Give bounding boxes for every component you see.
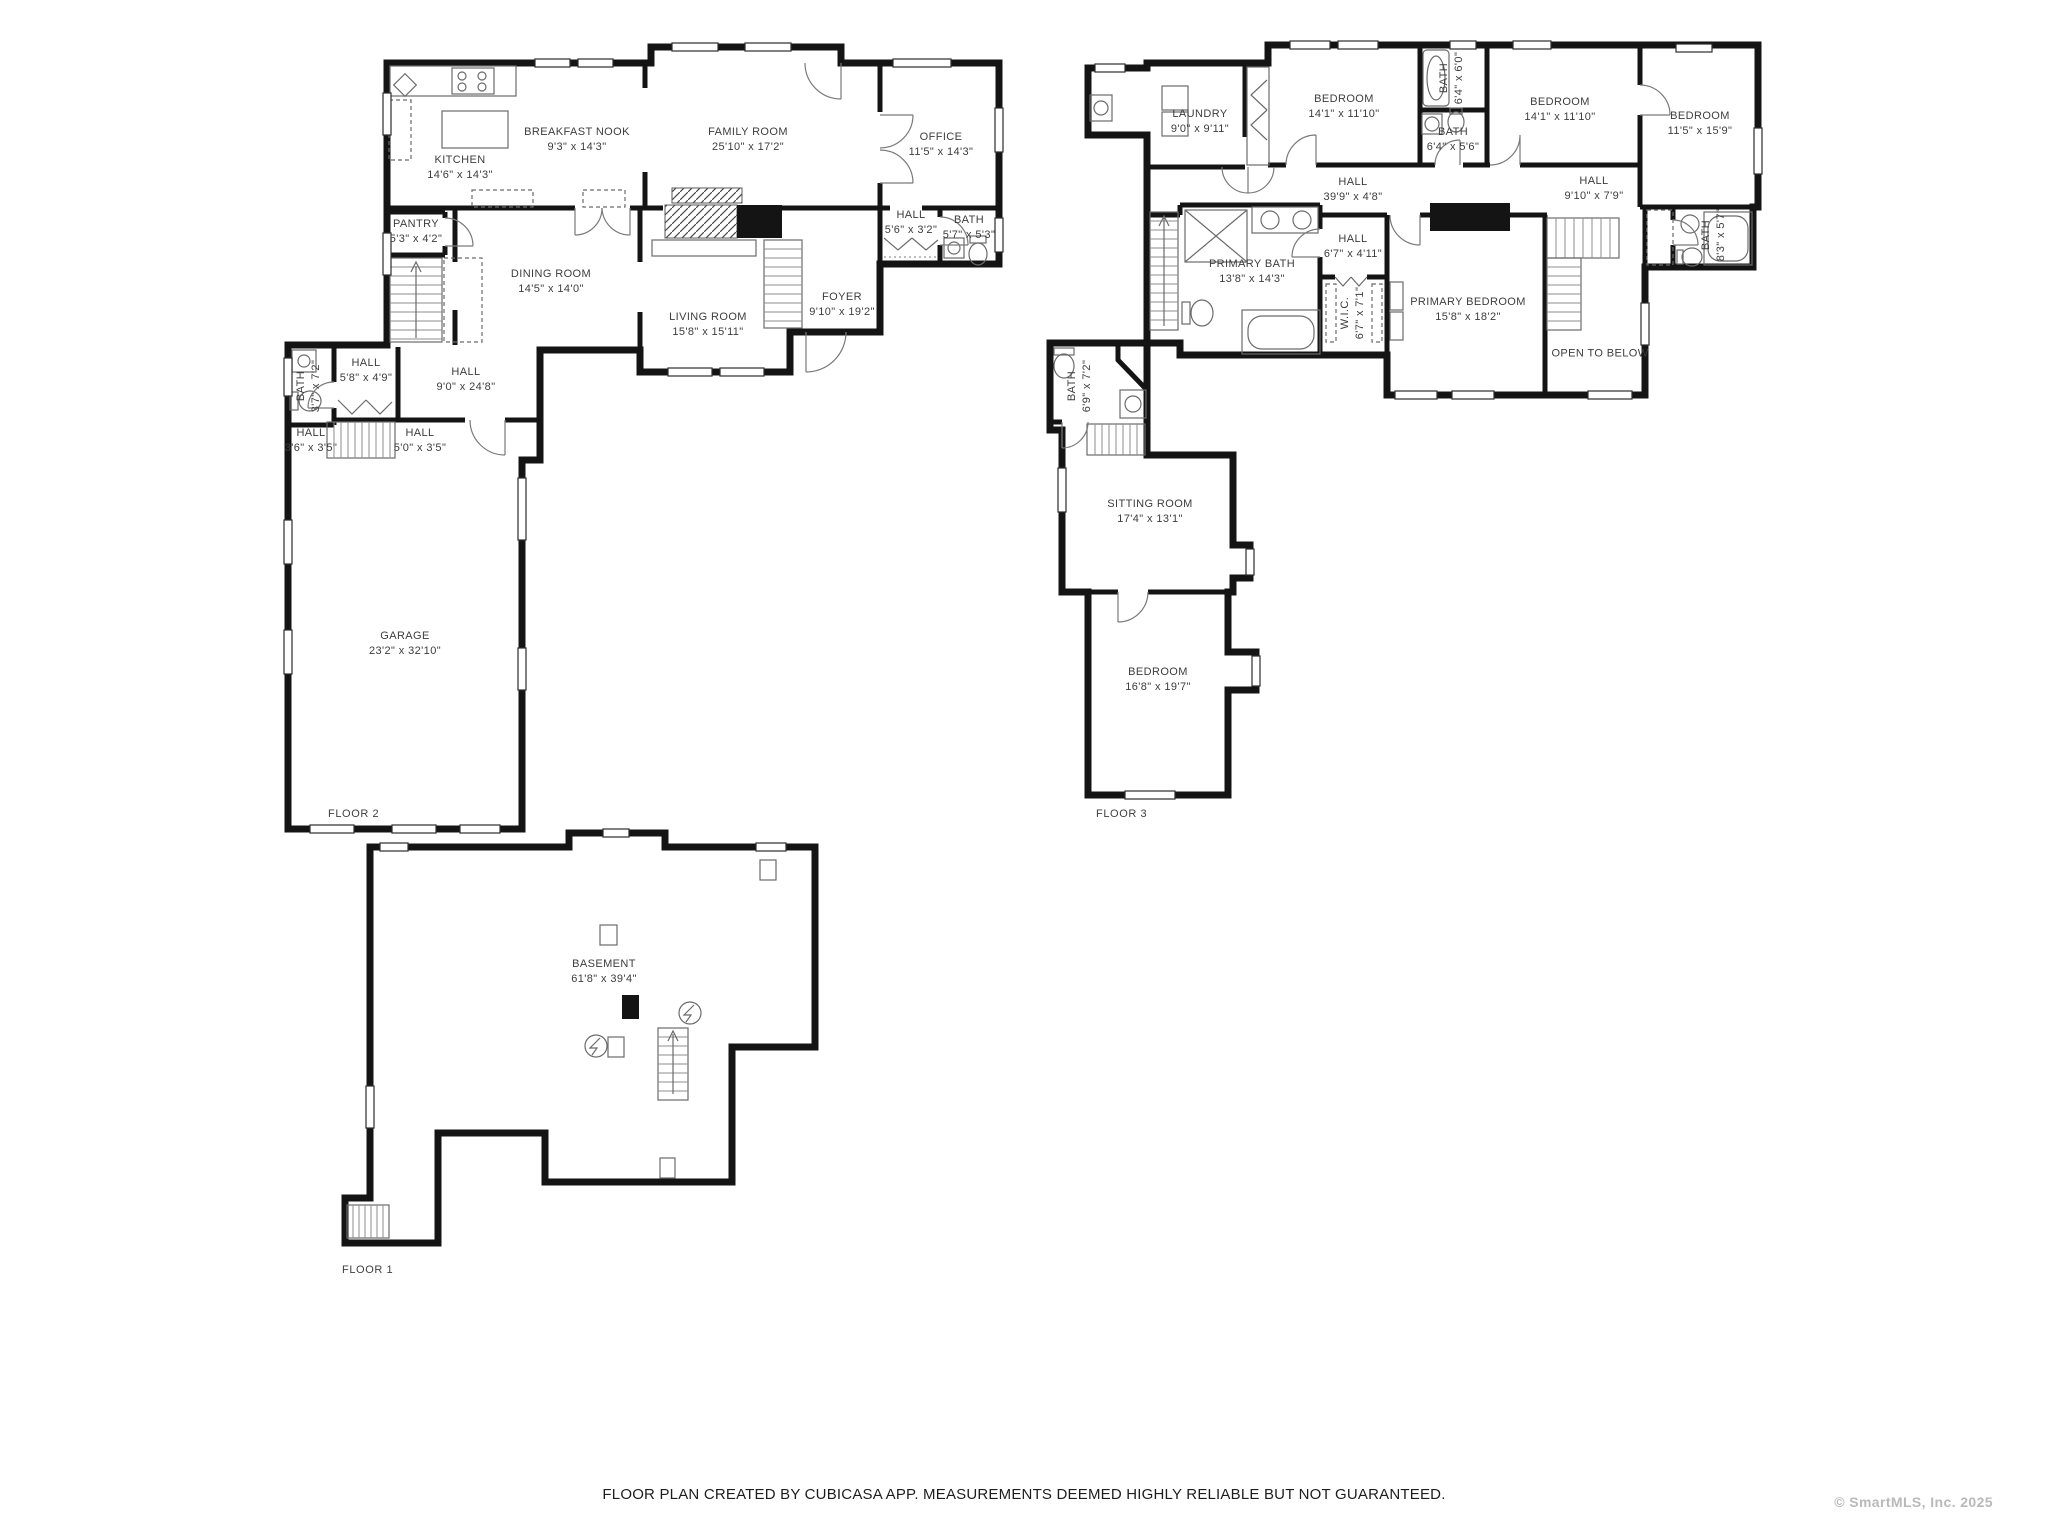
floor-plan-page: KITCHEN14'6" x 14'3" BREAKFAST NOOK9'3" …	[0, 0, 2048, 1536]
room-label-hall: HALL6'7" x 4'11"	[1324, 232, 1382, 262]
room-label-hall: HALL3'6" x 3'5"	[285, 426, 338, 456]
room-label-office: OFFICE11'5" x 14'3"	[909, 130, 974, 160]
room-label-hall: HALL5'0" x 3'5"	[394, 426, 447, 456]
room-label-bath: BATH8'3" x 5'7"	[1699, 209, 1729, 262]
floor-1-plan	[345, 829, 815, 1243]
room-label-bedroom: BEDROOM14'1" x 11'10"	[1308, 92, 1379, 122]
room-label-garage: GARAGE23'2" x 32'10"	[369, 629, 441, 659]
room-label-bedroom: BEDROOM11'5" x 15'9"	[1668, 109, 1733, 139]
floor-plan-canvas	[0, 0, 2048, 1536]
room-label-sitting-room: SITTING ROOM17'4" x 13'1"	[1107, 497, 1192, 527]
room-label-basement: BASEMENT61'8" x 39'4"	[571, 957, 637, 987]
footer-disclaimer: FLOOR PLAN CREATED BY CUBICASA APP. MEAS…	[0, 1486, 2048, 1503]
room-label-bath: BATH6'4" x 6'0"	[1437, 52, 1467, 105]
room-label-primary-bedroom: PRIMARY BEDROOM15'8" x 18'2"	[1410, 295, 1526, 325]
room-label-hall: HALL5'6" x 3'2"	[885, 208, 938, 238]
room-label-bath: BATH5'7" x 5'3"	[943, 213, 996, 243]
room-label-laundry: LAUNDRY9'0" x 9'11"	[1171, 107, 1229, 137]
smartmls-watermark: © SmartMLS, Inc. 2025	[1834, 1494, 1993, 1510]
room-label-dining-room: DINING ROOM14'5" x 14'0"	[511, 267, 591, 297]
room-label-bath: BATH6'4" x 5'6"	[1427, 125, 1480, 155]
room-label-bath: BATH6'9" x 7'2"	[1065, 360, 1095, 413]
floor-2-title: FLOOR 2	[328, 808, 379, 820]
room-label-bath: BATH3'7" x 7'2"	[294, 360, 324, 413]
room-label-bedroom: BEDROOM14'1" x 11'10"	[1524, 95, 1595, 125]
room-label-hall: HALL9'10" x 7'9"	[1564, 174, 1623, 204]
room-label-wic: W.I.C.6'7" x 7'1"	[1338, 287, 1368, 340]
chimney-icon	[1430, 203, 1510, 231]
room-label-hall: HALL9'0" x 24'8"	[436, 365, 495, 395]
room-label-family-room: FAMILY ROOM25'10" x 17'2"	[708, 125, 788, 155]
floor-1-outer-walls	[345, 833, 815, 1243]
room-label-kitchen: KITCHEN14'6" x 14'3"	[427, 153, 493, 183]
room-label-primary-bath: PRIMARY BATH13'8" x 14'3"	[1209, 257, 1295, 287]
room-label-breakfast-nook: BREAKFAST NOOK9'3" x 14'3"	[524, 125, 630, 155]
room-label-bedroom: BEDROOM16'8" x 19'7"	[1125, 665, 1191, 695]
chimney-icon	[622, 995, 639, 1019]
room-label-foyer: FOYER9'10" x 19'2"	[809, 290, 875, 320]
room-label-hall: HALL39'9" x 4'8"	[1323, 175, 1382, 205]
room-label-living-room: LIVING ROOM15'8" x 15'11"	[669, 310, 747, 340]
floor-1-title: FLOOR 1	[342, 1264, 393, 1276]
floor-3-title: FLOOR 3	[1096, 808, 1147, 820]
room-label-pantry: PANTRY5'3" x 4'2"	[390, 217, 443, 247]
floor-2-plan	[284, 43, 1003, 833]
room-label-open-to-below: OPEN TO BELOW	[1551, 347, 1648, 362]
room-label-hall: HALL5'8" x 4'9"	[340, 356, 393, 386]
